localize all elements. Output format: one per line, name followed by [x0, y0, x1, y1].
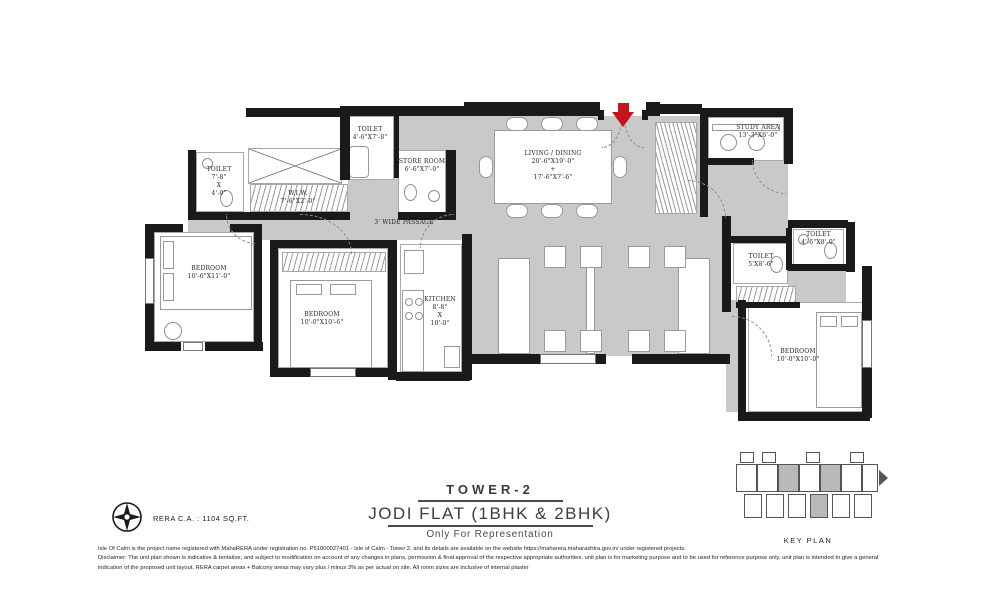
side-table	[664, 246, 686, 268]
room-dims: 7'-8"	[198, 174, 240, 182]
keyplan-unit	[862, 464, 878, 492]
label-toilet-right-top: TOILET 4'-6"X8'-0"	[793, 231, 844, 247]
room-name: BEDROOM	[277, 311, 367, 319]
kitchen-sink	[444, 346, 460, 368]
room-name: TOILET	[198, 166, 240, 174]
dining-chair	[479, 156, 493, 178]
disclaimer-text: Isle Of Calm is the project name registe…	[98, 545, 908, 573]
wall-segment	[348, 106, 472, 116]
room-dims: 5'X8'-6"	[735, 261, 787, 269]
window	[310, 368, 356, 377]
keyplan-unit	[854, 494, 872, 518]
keyplan-unit-highlighted	[778, 464, 799, 492]
wall-segment	[246, 108, 350, 117]
keyplan-unit	[788, 494, 806, 518]
keyplan-unit	[832, 494, 850, 518]
dining-chair	[506, 117, 528, 131]
keyplan-unit	[740, 452, 754, 463]
plant	[164, 322, 182, 340]
room-dims: 8'-8"	[420, 304, 460, 312]
room-name: TOILET	[344, 126, 396, 134]
wall-segment	[788, 264, 846, 271]
keyplan-unit	[806, 452, 820, 463]
wc	[404, 184, 417, 201]
wall-segment	[388, 240, 397, 380]
dining-chair	[576, 204, 598, 218]
side-table	[544, 330, 566, 352]
keyplan-unit	[736, 464, 757, 492]
room-name: STORE ROOM	[392, 158, 452, 166]
keyplan-unit	[757, 464, 778, 492]
side-table	[544, 246, 566, 268]
representation-note: Only For Representation	[390, 529, 590, 540]
label-bedroom-right: BEDROOM 10'-0"X10'-0"	[752, 348, 844, 364]
room-dims: 4'-6"X7'-8"	[344, 134, 396, 142]
bathtub	[349, 146, 369, 178]
room-dims: 10'-0"X10'-6"	[277, 319, 367, 327]
hob-burner	[405, 298, 413, 306]
window	[183, 342, 203, 351]
washbasin	[428, 190, 440, 202]
wall-segment	[788, 220, 848, 228]
tower-title: TOWER-2	[380, 482, 600, 497]
keyplan-unit	[762, 452, 776, 463]
floor-right-top-deck	[788, 266, 846, 306]
room-dims: 7'-6"X2'-0"	[250, 198, 346, 206]
wall-segment	[340, 106, 350, 180]
wall-segment	[738, 412, 870, 421]
label-toilet-right: TOILET 5'X8'-6"	[735, 253, 787, 269]
dining-chair	[613, 156, 627, 178]
room-name: BEDROOM	[752, 348, 844, 356]
room-dims: X	[198, 182, 240, 190]
room-dims: 17'-6"X7'-6"	[496, 174, 610, 182]
disclaimer-line: Disclaimer: The unit plan shown is indic…	[98, 554, 908, 563]
room-dims: +	[496, 166, 610, 174]
room-dims: 10'-0"	[420, 320, 460, 328]
label-study-area: STUDY AREA 13'-3"X6'-0"	[708, 124, 808, 140]
room-name: 3' WIDE PASSAGE	[352, 219, 456, 227]
room-name: TOILET	[793, 231, 844, 239]
side-table	[580, 330, 602, 352]
room-dims: 13'-3"X6'-0"	[708, 132, 808, 140]
label-passage: 3' WIDE PASSAGE	[352, 219, 456, 227]
room-dims: 6'-6"X7'-0"	[392, 166, 452, 174]
room-dims: 4'-6"X8'-0"	[793, 239, 844, 247]
disclaimer-line: Isle Of Calm is the project name registe…	[98, 545, 908, 554]
wall-segment	[846, 222, 855, 272]
keyplan-unit	[766, 494, 784, 518]
keyplan-unit	[744, 494, 762, 518]
side-table	[628, 330, 650, 352]
sofa-left	[498, 258, 530, 354]
hob-burner	[405, 312, 413, 320]
room-name: BEDROOM	[164, 265, 254, 273]
room-name: KITCHEN	[420, 296, 460, 304]
side-table	[580, 246, 602, 268]
room-dims: 10'-0"X10'-0"	[752, 356, 844, 364]
keyplan-unit-highlighted	[810, 494, 828, 518]
wall-segment	[145, 224, 183, 232]
wall-segment	[632, 354, 730, 364]
label-kitchen: KITCHEN 8'-8" X 10'-0"	[420, 296, 460, 328]
dining-chair	[506, 204, 528, 218]
wall-segment	[462, 234, 472, 380]
side-table	[664, 330, 686, 352]
room-name: LIVING / DINING	[496, 150, 610, 158]
pillow	[330, 284, 356, 295]
label-toilet-left: TOILET 7'-8" X 4'-0"	[198, 166, 240, 198]
room-name: STUDY AREA	[708, 124, 808, 132]
refrigerator	[404, 250, 424, 274]
wall-segment	[145, 342, 181, 351]
wall-segment	[254, 230, 262, 350]
room-dims: 4'-0"	[198, 190, 240, 198]
window	[862, 320, 872, 368]
dining-chair	[576, 117, 598, 131]
room-dims: X	[420, 312, 460, 320]
keyplan-unit-highlighted	[820, 464, 841, 492]
label-store-room: STORE ROOM 6'-6"X7'-0"	[392, 158, 452, 174]
wall-segment	[188, 150, 196, 220]
floor-plan-page: TOILET 4'-6"X7'-8" STORE ROOM 6'-6"X7'-0…	[0, 0, 1000, 600]
room-dims: 10'-6"X11'-0"	[164, 273, 254, 281]
pillow	[841, 316, 858, 327]
wardrobe-cross-unit	[248, 148, 342, 184]
wall-segment	[700, 108, 790, 117]
pillow	[820, 316, 837, 327]
rera-carpet-area: RERA C.A. : 1104 SQ.FT.	[153, 514, 249, 523]
wall-segment	[464, 102, 600, 116]
wall-segment	[722, 216, 731, 312]
side-table	[628, 246, 650, 268]
wall-segment	[658, 104, 702, 114]
keyplan-label: KEY PLAN	[733, 536, 883, 545]
compass-icon	[110, 500, 144, 534]
wall-segment	[270, 242, 278, 376]
pillow	[296, 284, 322, 295]
wall-segment	[700, 158, 754, 165]
window	[540, 354, 596, 364]
wardrobe-bedroom-mid	[282, 252, 386, 272]
label-living-dining: LIVING / DINING 20'-6"X19'-0" + 17'-6"X7…	[496, 150, 610, 182]
keyplan-unit	[850, 452, 864, 463]
label-bedroom-left: BEDROOM 10'-6"X11'-0"	[164, 265, 254, 281]
wall-segment	[205, 342, 263, 351]
disclaimer-line: indication of the proposed unit layout. …	[98, 564, 908, 573]
keyplan-unit	[841, 464, 862, 492]
wall-segment	[726, 236, 790, 243]
keyplan-unit	[799, 464, 820, 492]
window	[145, 258, 154, 304]
room-name: W.I.W.	[250, 190, 346, 198]
flat-title: JODI FLAT (1BHK & 2BHK)	[355, 504, 625, 524]
room-name: TOILET	[735, 253, 787, 261]
title-divider	[388, 525, 593, 527]
room-dims: 20'-6"X19'-0"	[496, 158, 610, 166]
label-bedroom-mid: BEDROOM 10'-0"X10'-6"	[277, 311, 367, 327]
dining-chair	[541, 204, 563, 218]
wall-segment	[396, 372, 470, 381]
label-toilet-top-left: TOILET 4'-6"X7'-8"	[344, 126, 396, 142]
dining-chair	[541, 117, 563, 131]
title-divider	[418, 500, 563, 502]
label-wiw: W.I.W. 7'-6"X2'-0"	[250, 190, 346, 206]
keyplan-arrow-icon	[879, 470, 888, 486]
entry-arrow-icon	[612, 112, 634, 127]
